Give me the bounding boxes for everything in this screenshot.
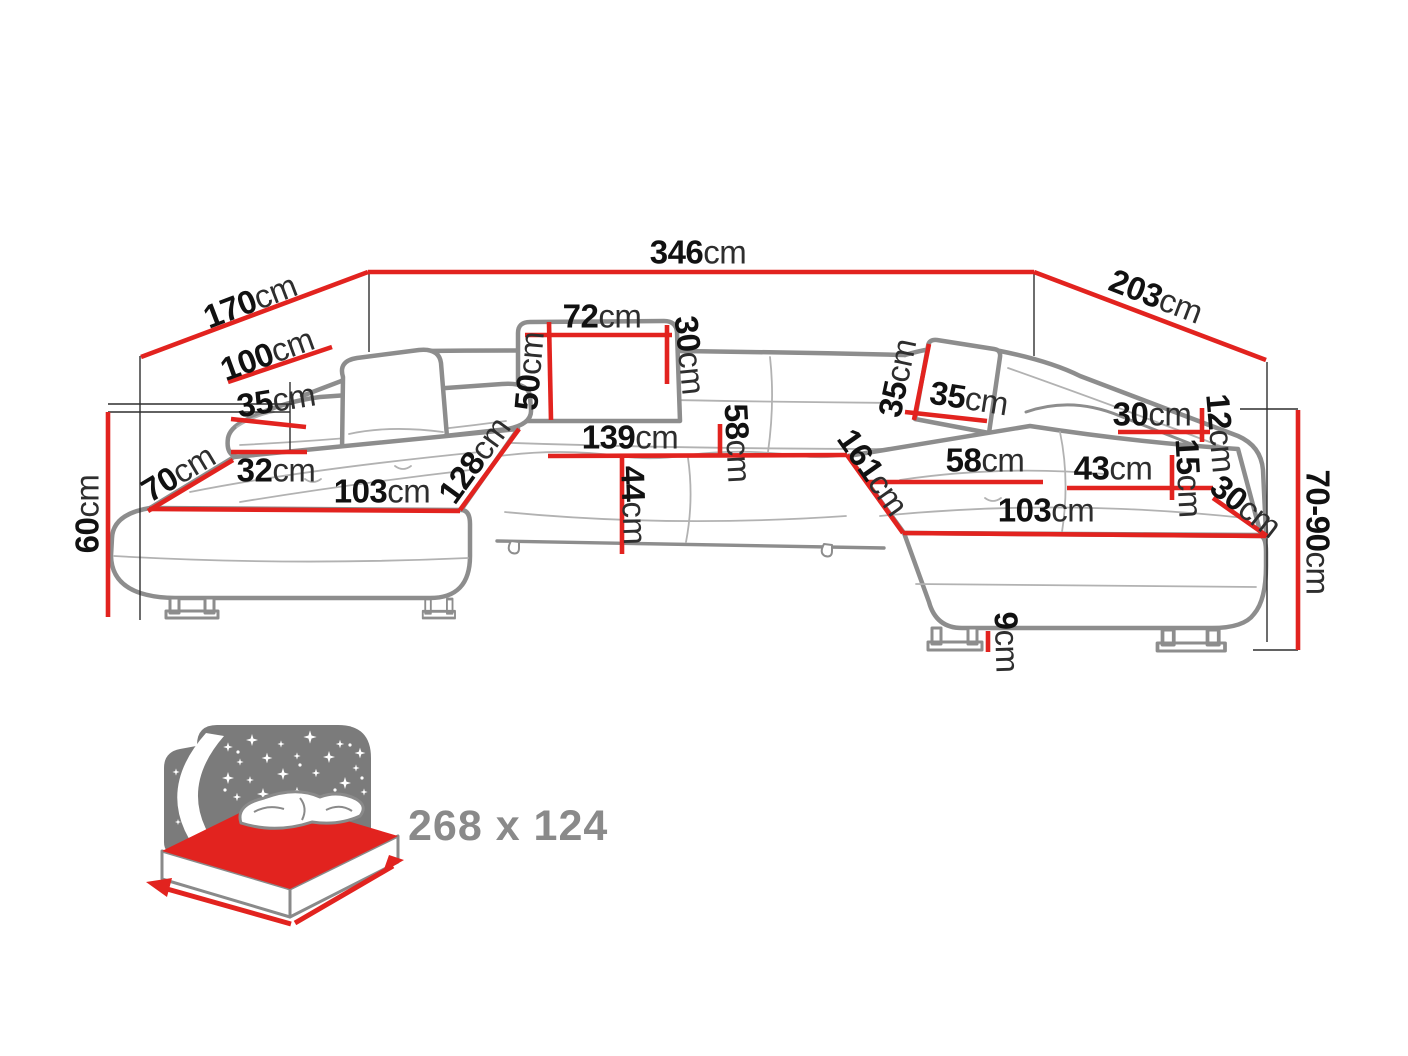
- sofa-chaise-left-front: [111, 508, 470, 598]
- dimension-line-203cm: [1034, 272, 1266, 360]
- dimension-line-103cm-right: [903, 533, 1266, 536]
- sofa-chaise-right-front: [904, 533, 1266, 628]
- dimension-line-139cm: [548, 455, 847, 456]
- sofa-dimension-diagram: 346cm170cm203cm100cm35cm70cm32cm103cm60c…: [0, 0, 1408, 1056]
- sleeping-area-size-label: 268 x 124: [408, 802, 608, 851]
- dimension-line-103cm-left: [149, 509, 460, 511]
- dimension-line-100cm: [228, 347, 332, 382]
- dimension-line-170cm: [141, 272, 368, 357]
- diagram-canvas: [0, 0, 1408, 1056]
